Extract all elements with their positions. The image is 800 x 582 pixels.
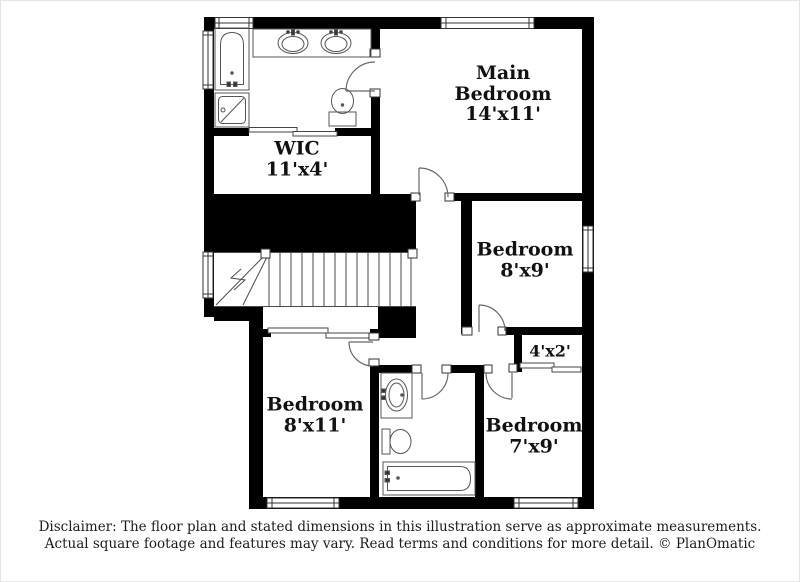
newel-post [261, 249, 270, 258]
room-dimensions: 7'x9' [486, 436, 583, 457]
room-name: WIC [266, 138, 329, 159]
staircase-icon [214, 249, 417, 307]
sliding-door-icon [249, 128, 337, 137]
room-dimensions: 8'x11' [267, 415, 364, 436]
sliding-door-icon [520, 363, 581, 372]
room-dimensions: 8'x9' [477, 260, 574, 281]
stair-cut-line [243, 257, 267, 305]
room-name: Bedroom [477, 239, 574, 260]
room-name: Bedroom [267, 394, 364, 415]
window-icon [215, 18, 253, 29]
window-icon [267, 498, 339, 508]
door-arc-icon [486, 373, 512, 399]
window-icon [583, 226, 593, 272]
toilet-icon [382, 429, 411, 454]
room-name: Bedroom [455, 84, 552, 105]
window-icon [441, 18, 534, 29]
hall-bath-fixtures [381, 373, 475, 495]
window-icon [514, 498, 578, 508]
disclaimer-line-1: Disclaimer: The floor plan and stated di… [1, 519, 799, 536]
door-arc-icon [422, 373, 448, 399]
window-icon [203, 252, 213, 298]
room-label-wic: WIC 11'x4' [266, 138, 329, 179]
floor-plan-page: Main Bedroom 14'x11' WIC 11'x4' Bedroom … [0, 0, 800, 582]
room-dimensions: 14'x11' [455, 104, 552, 125]
double-sink-vanity-icon [253, 29, 371, 57]
room-label-closet-4x2: 4'x2' [529, 342, 571, 359]
room-label-bedroom-7x9: Bedroom 7'x9' [486, 415, 583, 456]
shower-icon [215, 93, 249, 127]
sliding-door-icon [268, 328, 372, 338]
sink-vanity-icon [381, 373, 412, 418]
door-arc-icon [346, 62, 375, 91]
room-dimensions: 4'x2' [529, 342, 571, 359]
room-label-bedroom-8x11: Bedroom 8'x11' [267, 394, 364, 435]
newel-post [408, 249, 417, 258]
stair-treads [269, 253, 411, 306]
window-icon [203, 31, 213, 89]
disclaimer-line-2: Actual square footage and features may v… [1, 536, 799, 553]
disclaimer-text: Disclaimer: The floor plan and stated di… [1, 519, 799, 554]
toilet-icon [329, 89, 356, 127]
floor-plan-drawing [1, 1, 800, 582]
room-name: Main [455, 63, 552, 84]
bathtub-icon [383, 462, 475, 495]
door-arc-icon [419, 168, 448, 197]
room-dimensions: 11'x4' [266, 159, 329, 180]
bathtub-icon [215, 28, 249, 90]
room-name: Bedroom [486, 415, 583, 436]
room-label-main-bedroom: Main Bedroom 14'x11' [455, 63, 552, 125]
room-label-bedroom-8x9: Bedroom 8'x9' [477, 239, 574, 280]
master-bath-fixtures [215, 28, 371, 127]
